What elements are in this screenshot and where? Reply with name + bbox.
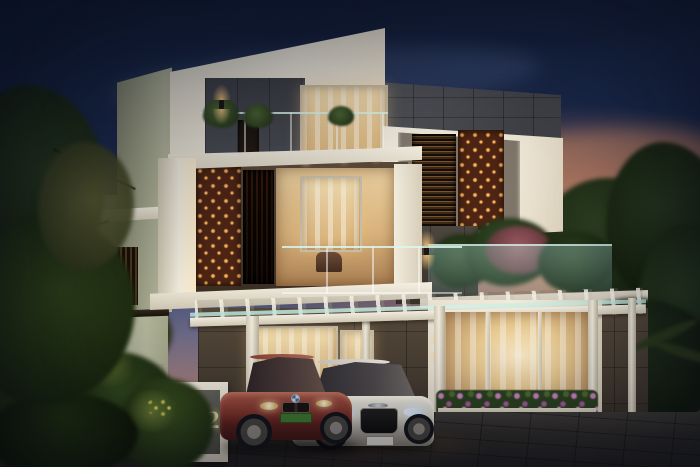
- kidney-grille: [282, 402, 310, 413]
- headlight-icon: [316, 400, 332, 407]
- yellow-flowers: [146, 398, 176, 416]
- car-grille: [360, 408, 398, 434]
- maroon-sedan: [220, 352, 354, 454]
- license-plate-white: [366, 436, 394, 446]
- middle-volume-left-frame: [158, 158, 196, 308]
- perforated-rust-panel: [458, 130, 504, 230]
- balcony-planter: [328, 106, 354, 126]
- pergola-post: [628, 298, 636, 420]
- license-plate-green: [280, 413, 312, 423]
- middle-balcony-glass-railing: [282, 246, 462, 294]
- middle-interior-window: [300, 176, 362, 252]
- car-wheel: [236, 414, 272, 450]
- vertical-louver-screen: [243, 170, 274, 284]
- car-wheel: [320, 412, 352, 444]
- wall-sconce-light: [219, 100, 224, 109]
- roundel-badge-icon: [291, 394, 300, 403]
- villa-dusk-render: 02: [0, 0, 700, 467]
- car-wheel: [404, 414, 434, 444]
- perforated-rust-panel: [196, 166, 241, 286]
- headlight-icon: [260, 402, 278, 410]
- balcony-planter: [243, 104, 273, 128]
- four-rings-badge-icon: [368, 403, 388, 408]
